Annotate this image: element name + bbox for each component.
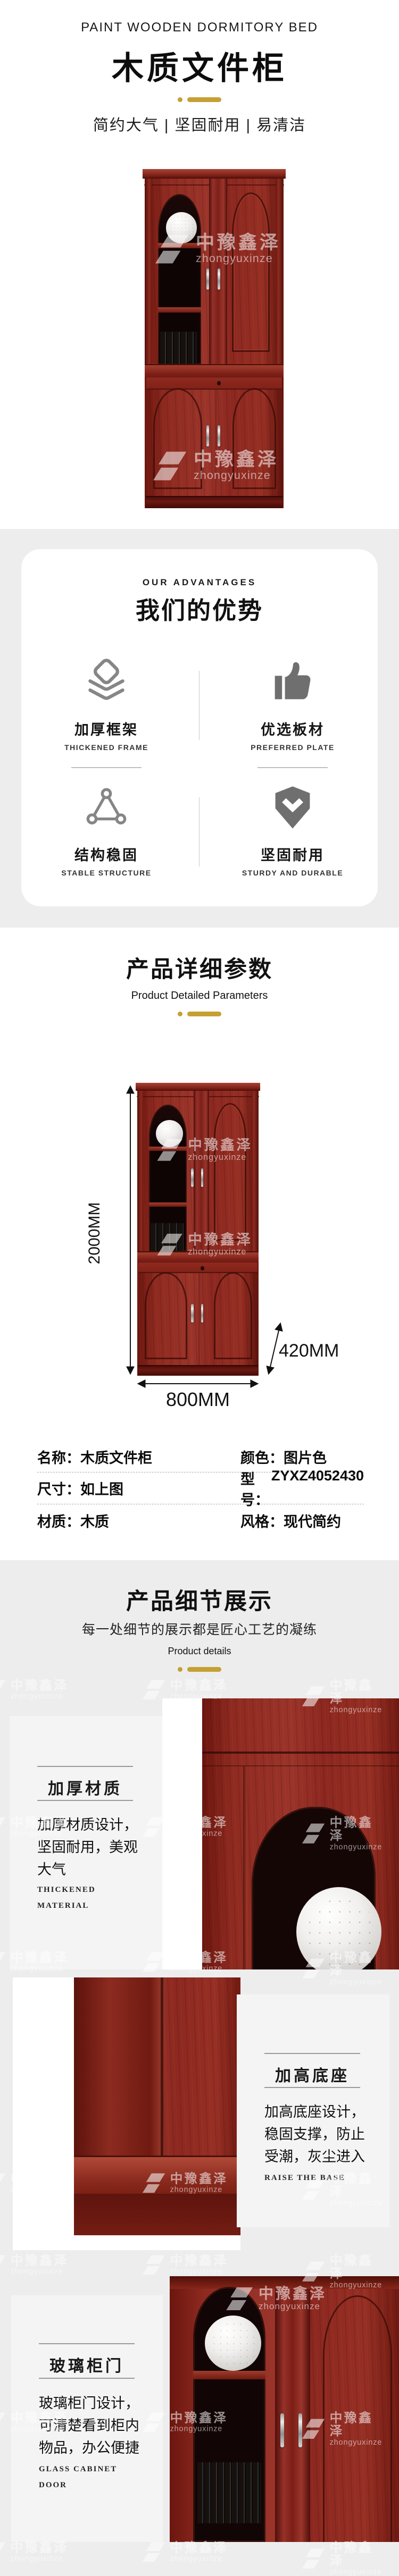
detail-title: 加高底座 (264, 2063, 360, 2086)
dimension-height-label: 2000MM (86, 1188, 104, 1278)
cabinet-part (146, 377, 282, 390)
cabinet-part (201, 1266, 204, 1270)
detail-title: 加厚材质 (37, 1775, 133, 1799)
spec-value: 如上图 (80, 1478, 123, 1499)
cabinet-part (218, 268, 220, 290)
cabinet-part (214, 1103, 247, 1241)
parameters-subtitle: Product Detailed Parameters (0, 990, 399, 1002)
divider (39, 2378, 135, 2379)
divider (37, 1766, 133, 1767)
cabinet-part (214, 1272, 252, 1359)
details-subtitle: 每一处细节的展示都是匠心工艺的凝练 (0, 1619, 399, 1638)
details-title: 产品细节展示 (0, 1583, 399, 1616)
truss-triangle-icon (82, 784, 130, 831)
divider (199, 797, 199, 866)
spec-table: 名称：木质文件柜 颜色：图片色 尺寸：如上图 型号：ZYXZ4052430 材质… (37, 1442, 364, 1536)
cabinet-part (143, 169, 285, 179)
advantage-subtitle: THICKENED FRAME (17, 743, 196, 752)
cabinet-part (156, 1120, 183, 1147)
product-detail-page: PAINT WOODEN DORMITORY BED 木质文件柜 简约大气 | … (0, 0, 399, 2576)
cabinet-part (153, 388, 202, 489)
cabinet-part (138, 1262, 257, 1273)
advantage-title: 优选板材 (203, 718, 382, 739)
advantage-title: 加厚框架 (17, 718, 196, 739)
detail-photo-raised-base (13, 1977, 240, 2250)
detail-description: 加高底座设计，稳固支撑，防止受潮，灰尘进入 (264, 2101, 377, 2168)
shield-check-icon (269, 784, 317, 831)
dimension-photo (137, 1083, 259, 1376)
detail-text-block: 玻璃柜门 玻璃柜门设计，可清楚看到柜内物品，办公便捷 GLASS CABINET… (11, 2295, 163, 2542)
detail-photo-thickened-material (162, 1698, 399, 1969)
cabinet-part (137, 1091, 143, 1251)
page-title: 木质文件柜 (0, 43, 399, 89)
spec-label: 颜色： (240, 1446, 284, 1467)
detail-text-block: 加高底座 加高底座设计，稳固支撑，防止受潮，灰尘进入 RAISE THE BAS… (237, 1994, 389, 2227)
cabinet-part (136, 1083, 260, 1091)
divider (37, 1800, 133, 1801)
detail-description: 加厚材质设计，坚固耐用，美观大气 (37, 1814, 150, 1881)
divider (264, 2053, 360, 2054)
cabinet-part (191, 1304, 194, 1323)
cabinet-part (158, 307, 201, 313)
cabinet-part (137, 1251, 259, 1262)
spec-value: 图片色 (284, 1446, 327, 1467)
detail-title: 玻璃柜门 (39, 2353, 135, 2376)
detail-description: 玻璃柜门设计，可清楚看到柜内物品，办公便捷 (39, 2392, 152, 2459)
thumbs-up-icon (269, 658, 317, 706)
dimension-width-label: 800MM (137, 1388, 259, 1411)
cabinet-part (232, 388, 276, 489)
cabinet-part (191, 1168, 194, 1187)
spec-row: 材质：木质 风格：现代简约 (37, 1504, 364, 1536)
cabinet-part (145, 364, 284, 377)
cabinet-part (201, 1168, 204, 1187)
spec-row: 尺寸：如上图 型号：ZYXZ4052430 (37, 1472, 364, 1504)
cabinet-part (151, 1223, 184, 1251)
divider (257, 767, 328, 768)
advantages-eyebrow: OUR ADVANTAGES (0, 577, 399, 588)
divider (264, 2087, 360, 2088)
spec-value: 木质 (80, 1510, 109, 1531)
detail-title-en: GLASS CABINET DOOR (39, 2461, 132, 2493)
header-eyebrow: PAINT WOODEN DORMITORY BED (0, 20, 399, 35)
advantage-item-preferred-plate: 优选板材 PREFERRED PLATE (203, 658, 382, 752)
cabinet-part (218, 425, 220, 447)
details-subtitle-en: Product details (0, 1646, 399, 1657)
cabinet-part (206, 425, 209, 447)
advantage-title: 结构稳固 (17, 844, 196, 864)
gold-divider (0, 97, 399, 102)
divider (199, 671, 199, 740)
advantage-item-thickened-frame: 加厚框架 THICKENED FRAME (17, 658, 196, 752)
spec-label: 风格： (240, 1510, 284, 1531)
spec-label: 材质： (37, 1510, 80, 1531)
detail-title-en: RAISE THE BASE (264, 2170, 358, 2186)
spec-label: 名称： (37, 1446, 80, 1467)
advantage-item-stable-structure: 结构稳固 STABLE STRUCTURE (17, 784, 196, 877)
header-tagline: 简约大气 | 坚固耐用 | 易清洁 (0, 113, 399, 135)
cabinet-part (276, 179, 284, 364)
cabinet-part (149, 1147, 187, 1151)
spec-label: 尺寸： (37, 1478, 80, 1499)
cabinet-part (215, 390, 217, 496)
cabinet-part (201, 1304, 204, 1323)
gold-divider (0, 1667, 399, 1672)
parameters-title: 产品详细参数 (0, 951, 399, 984)
advantage-subtitle: PREFERRED PLATE (203, 743, 382, 752)
advantage-subtitle: STABLE STRUCTURE (17, 869, 196, 877)
detail-photo-glass-door (170, 2276, 399, 2542)
spec-value: 木质文件柜 (80, 1446, 152, 1467)
cabinet-part (145, 179, 152, 364)
spec-value: ZYXZ4052430 (271, 1468, 364, 1509)
cabinet-part (232, 192, 269, 352)
advantages-title: 我们的优势 (0, 591, 399, 626)
cabinet-part (158, 243, 201, 248)
detail-text-block: 加厚材质 加厚材质设计，坚固耐用，美观大气 THICKENED MATERIAL (10, 1716, 162, 1969)
gold-divider (0, 1012, 399, 1016)
cabinet-part (198, 1273, 200, 1365)
layers-icon (82, 658, 130, 706)
spec-label: 型号： (240, 1468, 271, 1509)
cabinet-part (160, 332, 197, 364)
cabinet-part (145, 1272, 187, 1359)
spec-value: 现代简约 (284, 1510, 341, 1531)
cabinet-part (149, 1202, 187, 1207)
divider (71, 767, 142, 768)
advantage-title: 坚固耐用 (203, 844, 382, 864)
cabinet-part (252, 1091, 259, 1251)
cabinet-part (166, 212, 197, 243)
detail-title-en: THICKENED MATERIAL (37, 1882, 130, 1914)
divider (39, 2343, 135, 2344)
cabinet-part (138, 1365, 257, 1376)
cabinet-part (206, 268, 209, 290)
advantage-item-sturdy-durable: 坚固耐用 STURDY AND DURABLE (203, 784, 382, 877)
product-photo (145, 169, 284, 508)
dimension-depth-label: 420MM (279, 1341, 339, 1361)
cabinet-part (146, 496, 283, 508)
advantage-subtitle: STURDY AND DURABLE (203, 869, 382, 877)
